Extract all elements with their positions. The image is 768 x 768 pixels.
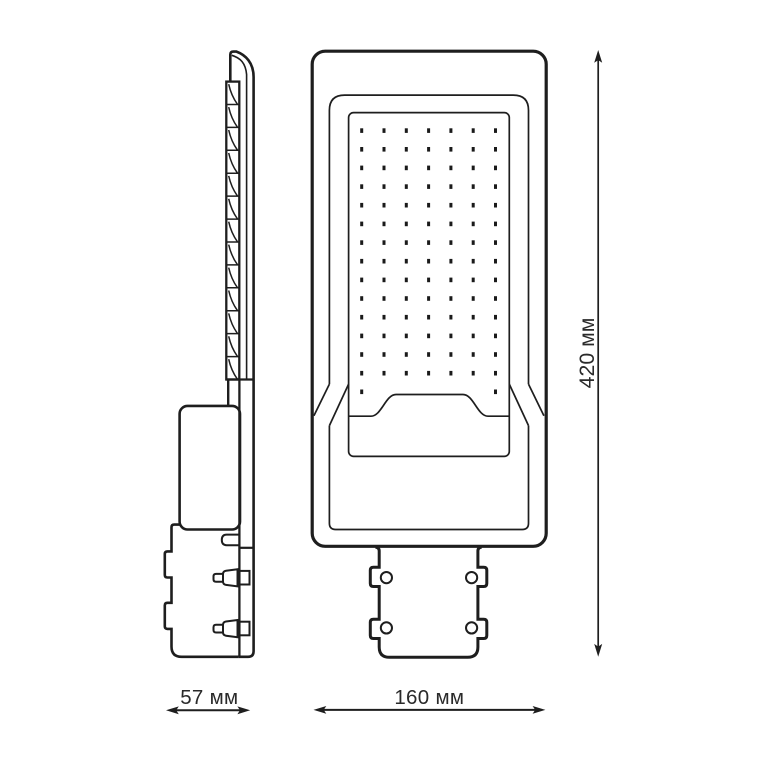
svg-text:160 мм: 160 мм (394, 686, 464, 709)
svg-text:57 мм: 57 мм (180, 686, 238, 709)
svg-text:420 мм: 420 мм (575, 318, 599, 389)
